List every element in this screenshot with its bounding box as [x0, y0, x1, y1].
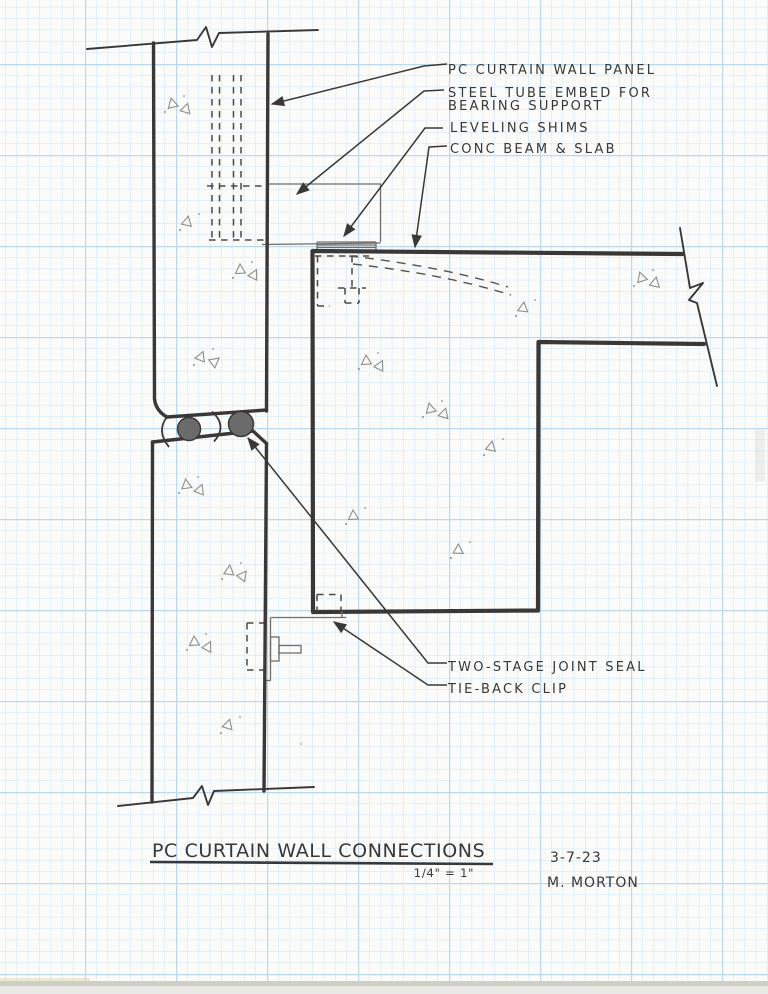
drawing-scale: 1/4" = 1"	[414, 866, 475, 880]
label-pc-curtain-wall-panel: PC CURTAIN WALL PANEL	[448, 63, 656, 78]
label-steel-tube-embed-line2: BEARING SUPPORT	[448, 99, 604, 114]
joint-gasket-right	[229, 412, 254, 437]
label-conc-beam-slab: CONC BEAM & SLAB	[450, 142, 617, 157]
joint-gasket-left	[178, 418, 201, 441]
drawing-author: M. MORTON	[547, 875, 639, 891]
scan-smudge	[300, 743, 303, 746]
detail-drawing: PC CURTAIN WALL PANEL STEEL TUBE EMBED F…	[0, 0, 768, 994]
label-two-stage-joint-seal: TWO-STAGE JOINT SEAL	[447, 660, 647, 675]
drawing-sheet: PC CURTAIN WALL PANEL STEEL TUBE EMBED F…	[0, 0, 768, 994]
grid-paper	[0, 0, 768, 982]
drawing-title: PC CURTAIN WALL CONNECTIONS	[152, 840, 485, 862]
drawing-date: 3-7-23	[550, 850, 602, 866]
label-leveling-shims: LEVELING SHIMS	[450, 121, 590, 136]
label-tie-back-clip: TIE-BACK CLIP	[447, 682, 568, 697]
